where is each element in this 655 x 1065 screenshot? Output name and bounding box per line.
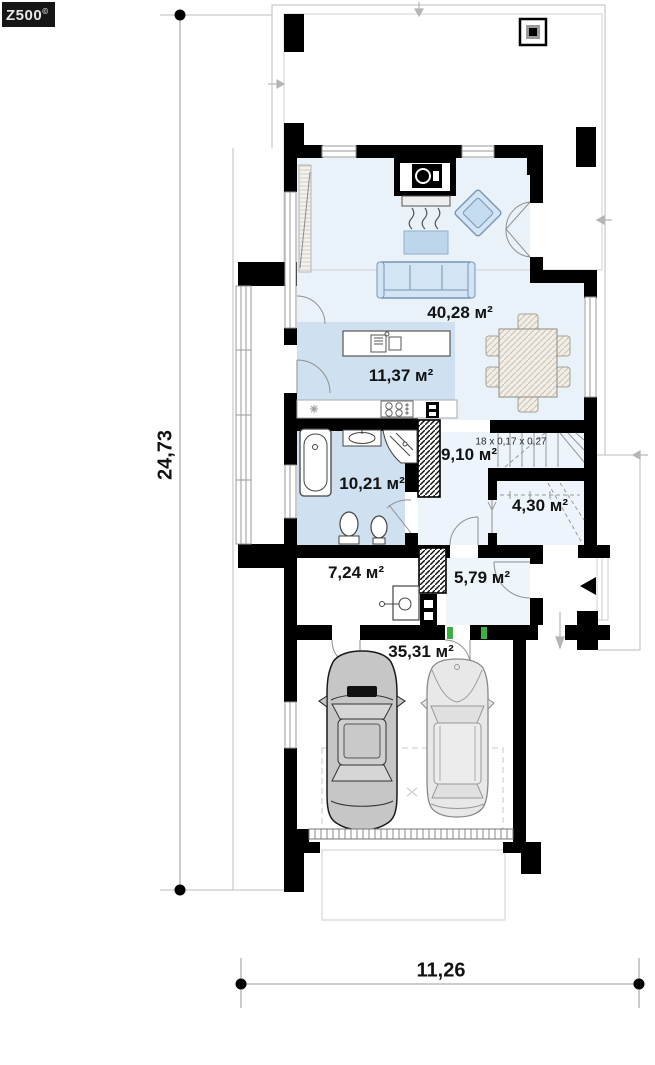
dining-chair xyxy=(556,336,570,356)
counter-symbol xyxy=(310,405,318,413)
door-thresholds xyxy=(447,627,487,639)
car-sedan xyxy=(319,651,405,830)
storage-area-label: 4,30 м² xyxy=(512,496,568,516)
total-width-label: 11,26 xyxy=(417,960,466,983)
living-area-label: 40,28 м² xyxy=(427,303,493,323)
floor-plan-drawing xyxy=(0,0,655,1065)
dining-set xyxy=(486,314,570,412)
bathroom-area-label: 10,21 м² xyxy=(339,474,405,494)
utility-area-label: 7,24 м² xyxy=(328,563,384,583)
terrace-pillar xyxy=(576,127,596,167)
vent-shaft xyxy=(418,420,440,497)
utility-sink xyxy=(380,586,420,620)
brand-logo-mark: © xyxy=(42,7,48,16)
dining-chair xyxy=(518,396,538,412)
dining-chair xyxy=(486,367,500,387)
kitchen-island xyxy=(343,331,450,356)
car-suv xyxy=(421,659,494,817)
stairs-spec-label: 18 x 0,17 x 0,27 xyxy=(475,437,546,448)
chimney-icon xyxy=(520,19,546,45)
entry-area-label: 5,79 м² xyxy=(454,568,510,588)
bidet xyxy=(371,516,387,544)
radiator-strip xyxy=(299,165,311,272)
chimney-block xyxy=(420,594,437,625)
garage-content xyxy=(309,651,513,839)
terrace-pillar xyxy=(284,123,304,148)
dining-chair xyxy=(518,314,538,330)
kitchen-area-label: 11,37 м² xyxy=(369,366,434,386)
floor-plan-canvas: Z500© 40,28 м² 11,37 м² 9,10 м² 10,21 м²… xyxy=(0,0,655,1065)
terrace-pillar xyxy=(284,14,304,52)
washbasin xyxy=(343,430,381,446)
dining-chair xyxy=(556,367,570,387)
brand-logo-text: Z500 xyxy=(6,7,42,24)
coffee-table xyxy=(404,231,448,254)
garage-door xyxy=(309,829,513,839)
toilet xyxy=(339,512,359,544)
dining-chair xyxy=(486,336,500,356)
driveway xyxy=(322,850,505,920)
bathtub xyxy=(300,429,331,496)
oven-icon xyxy=(426,402,439,418)
garage-area-label: 35,31 м² xyxy=(388,642,454,662)
total-depth-label: 24,73 xyxy=(155,430,178,480)
sofa xyxy=(377,262,475,298)
hall-area-label: 9,10 м² xyxy=(441,445,497,465)
parking-x xyxy=(407,788,417,796)
dining-table xyxy=(499,329,557,397)
vent-shaft xyxy=(419,548,446,593)
brand-logo: Z500© xyxy=(2,2,55,27)
entrance-arrow-icon xyxy=(580,577,596,595)
porch-pillar xyxy=(577,611,598,650)
